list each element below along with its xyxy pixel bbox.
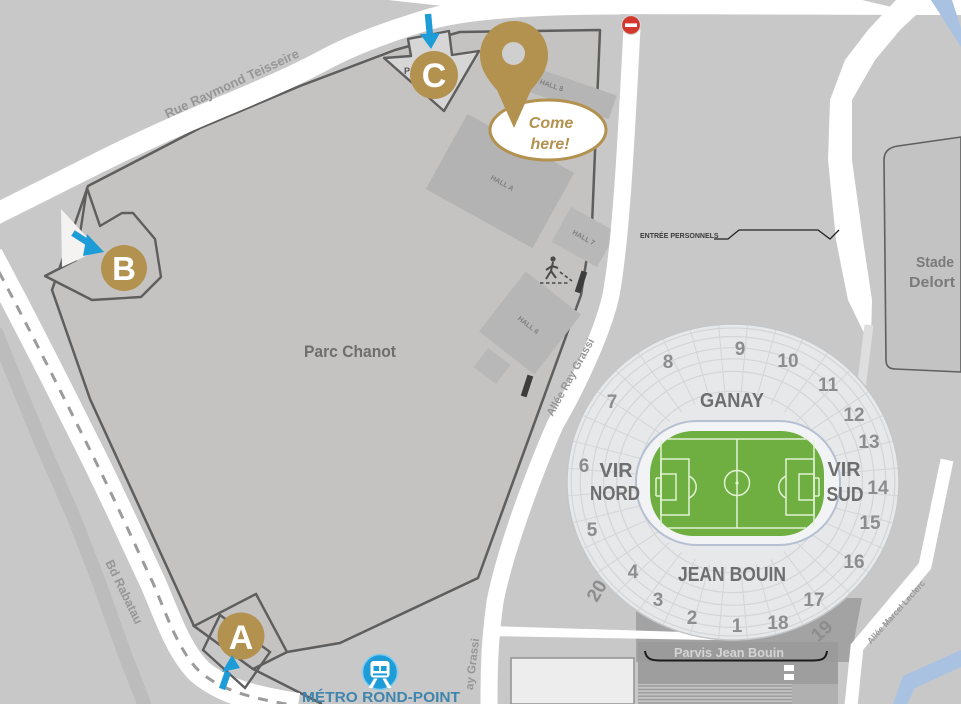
svg-text:Stade: Stade bbox=[916, 254, 954, 271]
svg-text:GANAY: GANAY bbox=[700, 390, 765, 412]
svg-text:10: 10 bbox=[777, 351, 798, 372]
svg-text:12: 12 bbox=[843, 405, 864, 426]
svg-text:SUD: SUD bbox=[827, 484, 864, 506]
svg-text:18: 18 bbox=[767, 613, 788, 634]
svg-text:11: 11 bbox=[818, 375, 839, 396]
svg-text:15: 15 bbox=[859, 513, 881, 534]
svg-text:A: A bbox=[229, 619, 254, 657]
svg-text:5: 5 bbox=[587, 520, 598, 541]
svg-text:8: 8 bbox=[663, 352, 674, 373]
svg-text:C: C bbox=[422, 57, 447, 95]
svg-text:3: 3 bbox=[653, 590, 664, 611]
svg-text:JEAN BOUIN: JEAN BOUIN bbox=[678, 564, 786, 586]
svg-text:13: 13 bbox=[858, 432, 879, 453]
svg-text:16: 16 bbox=[843, 552, 864, 573]
svg-text:MÉTRO ROND-POINT: MÉTRO ROND-POINT bbox=[302, 689, 460, 704]
svg-text:ENTRÉE PERSONNELS: ENTRÉE PERSONNELS bbox=[640, 231, 719, 240]
svg-text:2: 2 bbox=[687, 608, 698, 629]
svg-text:6: 6 bbox=[579, 456, 590, 477]
svg-text:14: 14 bbox=[867, 478, 889, 499]
svg-text:Parc Chanot: Parc Chanot bbox=[304, 343, 396, 361]
svg-text:VIR: VIR bbox=[600, 460, 634, 482]
svg-text:VIR: VIR bbox=[828, 459, 862, 481]
svg-text:Parvis Jean Bouin: Parvis Jean Bouin bbox=[674, 646, 784, 660]
svg-text:7: 7 bbox=[607, 392, 618, 413]
svg-text:Delort: Delort bbox=[909, 274, 955, 291]
svg-text:Come: Come bbox=[529, 115, 574, 132]
svg-text:9: 9 bbox=[735, 339, 746, 360]
svg-text:NORD: NORD bbox=[590, 483, 640, 505]
svg-text:here!: here! bbox=[530, 136, 570, 153]
svg-text:4: 4 bbox=[628, 562, 639, 583]
svg-text:1: 1 bbox=[732, 616, 743, 637]
svg-text:P: P bbox=[404, 66, 410, 76]
svg-text:B: B bbox=[112, 250, 136, 287]
svg-text:17: 17 bbox=[803, 590, 824, 611]
